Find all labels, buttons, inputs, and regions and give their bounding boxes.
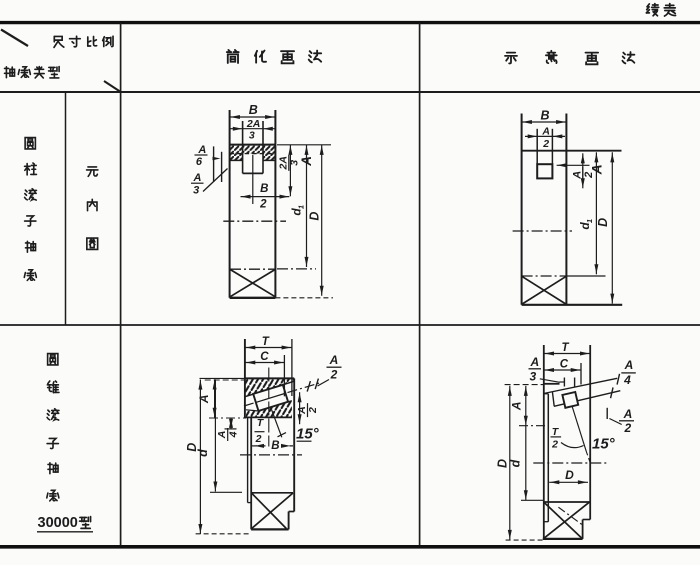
- svg-text:6: 6: [196, 156, 203, 168]
- svg-text:1: 1: [585, 219, 594, 223]
- svg-text:15°: 15°: [592, 436, 616, 453]
- svg-text:A: A: [193, 172, 202, 184]
- svg-text:A: A: [624, 358, 634, 372]
- svg-text:C: C: [560, 358, 569, 370]
- svg-text:2: 2: [259, 199, 267, 211]
- svg-text:A: A: [589, 164, 605, 175]
- svg-text:A: A: [571, 171, 583, 180]
- svg-text:2: 2: [307, 407, 319, 414]
- svg-text:B: B: [540, 108, 549, 122]
- svg-text:T: T: [262, 336, 270, 348]
- svg-text:4: 4: [623, 373, 631, 387]
- svg-text:A: A: [197, 144, 206, 156]
- svg-text:B: B: [249, 103, 258, 117]
- svg-text:A: A: [299, 156, 314, 167]
- svg-text:15°: 15°: [296, 426, 320, 443]
- svg-text:30000: 30000: [38, 515, 78, 531]
- svg-text:1: 1: [296, 205, 305, 209]
- svg-text:B: B: [260, 183, 268, 195]
- svg-text:2: 2: [551, 438, 558, 450]
- svg-text:d: d: [508, 459, 522, 467]
- svg-text:A: A: [197, 394, 211, 404]
- svg-text:D: D: [496, 459, 510, 468]
- svg-text:3: 3: [193, 184, 199, 196]
- svg-text:D: D: [596, 218, 610, 227]
- svg-text:A: A: [529, 355, 539, 369]
- svg-text:T: T: [561, 342, 569, 354]
- svg-text:D: D: [307, 212, 321, 221]
- svg-text:A: A: [623, 407, 633, 421]
- svg-text:3: 3: [529, 369, 536, 383]
- svg-text:2A: 2A: [246, 118, 260, 130]
- svg-text:D: D: [565, 468, 574, 482]
- svg-text:2: 2: [255, 433, 262, 445]
- svg-text:B: B: [271, 440, 279, 452]
- svg-text:2: 2: [542, 138, 549, 150]
- svg-text:D: D: [185, 443, 199, 452]
- svg-text:2: 2: [330, 368, 338, 382]
- svg-text:4: 4: [227, 431, 239, 438]
- svg-text:A: A: [541, 126, 550, 138]
- svg-text:3: 3: [249, 130, 255, 142]
- svg-text:A: A: [509, 401, 523, 411]
- svg-text:C: C: [260, 351, 269, 363]
- svg-text:2: 2: [624, 421, 632, 435]
- svg-text:A: A: [329, 353, 339, 367]
